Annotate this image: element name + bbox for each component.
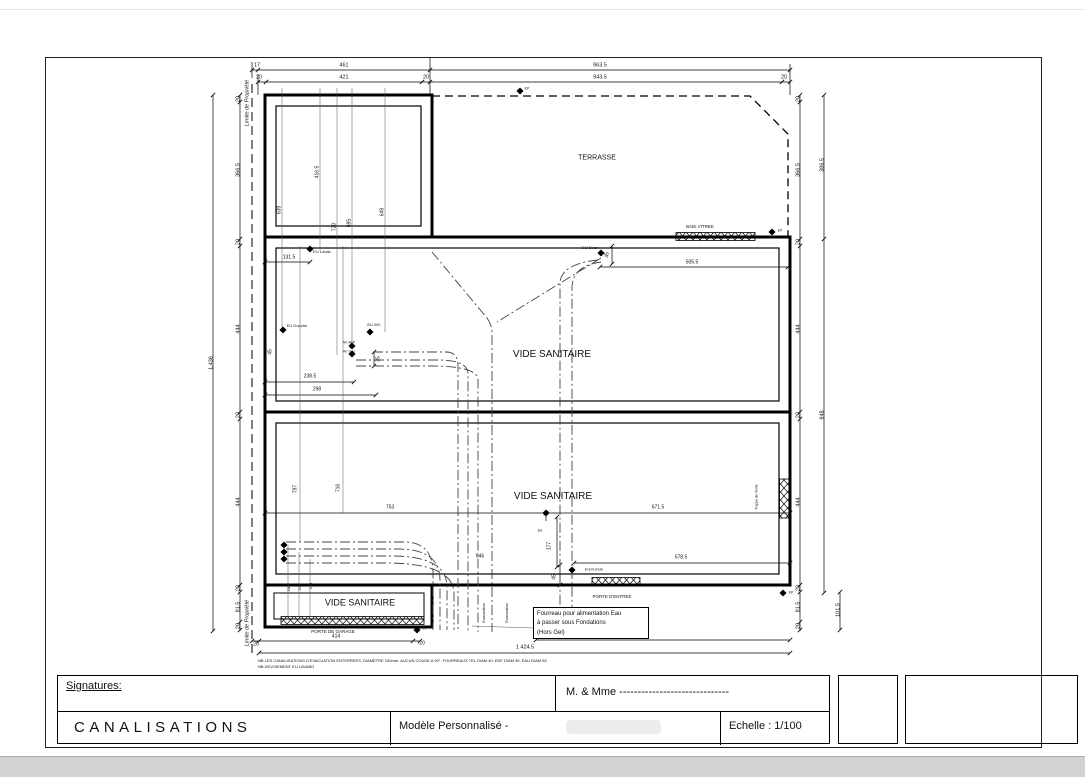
ep-marker-label: EP <box>789 591 794 595</box>
note-text: NB LES CANALISATIONS D'EVACUATION ENTERR… <box>258 659 547 663</box>
dim-label: 20 <box>796 239 802 245</box>
note-text: NB DEVOIEMENT EU LAVABO <box>258 665 314 669</box>
point-marker <box>568 566 575 573</box>
dim-label: 444 <box>796 497 802 506</box>
dim-label: 421 <box>339 75 348 81</box>
point-marker <box>366 328 373 335</box>
fourreau-note-line: Fourreau pour alimentation Eau <box>537 610 645 619</box>
dim-label: 298 <box>313 388 321 393</box>
dim-label: 81.5 <box>796 602 802 613</box>
dim-label: 414 <box>332 635 340 640</box>
fixture-label: Evacuation <box>482 603 486 623</box>
dim-label: 20 <box>256 75 262 81</box>
dim-label: 20 <box>236 96 242 102</box>
dim-label: 81.5 <box>236 602 242 613</box>
dim-label: 366.5 <box>796 163 802 177</box>
redacted-text <box>566 720 661 734</box>
dim-label: 948 <box>820 410 826 419</box>
point-marker <box>516 87 523 94</box>
plan-labels-layer: 17461963.52042120943.52020366.5204442044… <box>0 0 1085 777</box>
dim-label: 716 <box>337 484 342 492</box>
scale-cell: Echelle : 1/100 <box>721 712 829 745</box>
dim-label: 649 <box>381 208 386 216</box>
scale-label: Echelle : 1/100 <box>729 720 802 732</box>
drawing-title-cell: CANALISATIONS <box>58 712 391 745</box>
fourreau-note-line: (Hors Gel) <box>537 629 645 638</box>
dim-label: 366.5 <box>236 163 242 177</box>
room-label: TERRASSE <box>578 155 616 162</box>
room-label: VIDE SANITAIRE <box>513 350 591 360</box>
point-marker <box>779 589 786 596</box>
dim-label: 20 <box>236 623 242 629</box>
dim-label: 20 <box>796 585 802 591</box>
point-marker <box>279 326 286 333</box>
dim-label: 177 <box>548 542 553 550</box>
title-block-row2: CANALISATIONS Modèle Personnalisé - Eche… <box>58 712 829 745</box>
dim-label: 203 <box>298 584 302 591</box>
dim-label: 45 <box>606 252 611 258</box>
ep-marker-label: EP <box>525 87 530 91</box>
dim-label: 20 <box>796 623 802 629</box>
dim-label: 218 <box>309 583 313 590</box>
dim-label: 578.5 <box>675 556 688 561</box>
dim-label: 963.5 <box>593 63 607 69</box>
dim-label: 20 <box>236 239 242 245</box>
fourreau-note-box: Fourreau pour alimentation Eau à passer … <box>533 607 649 639</box>
drawing-title: CANALISATIONS <box>74 719 251 736</box>
dim-label: 20 <box>253 643 259 648</box>
point-marker <box>280 555 287 562</box>
dim-label: 17 <box>254 63 260 69</box>
signatures-cell: Signatures: <box>58 676 556 711</box>
signatures-label: Signatures: <box>66 680 122 692</box>
dim-label: 639 <box>278 206 283 214</box>
fourreau-note-line: à passer sous Fondations <box>537 619 645 628</box>
dim-label: 386.5 <box>820 158 826 172</box>
room-label: VIDE SANITAIRE <box>325 599 395 608</box>
canalisations-drawing-viewer: 17461963.52042120943.52020366.5204442044… <box>0 0 1085 777</box>
dim-label: 444 <box>796 324 802 333</box>
fixture-label: Event chute <box>585 568 603 572</box>
fixture-label: Evacuation <box>505 603 509 623</box>
dim-label: 505.5 <box>686 261 699 266</box>
viewer-bottom-bar <box>0 756 1085 777</box>
dim-label: 185 <box>287 585 291 592</box>
dim-label: 444 <box>236 324 242 333</box>
fixture-label: EU Evier <box>582 246 598 250</box>
property-line-label: Limite de Propriété <box>245 600 251 646</box>
title-block-side-box-small <box>838 675 898 744</box>
dim-label: 1,436 <box>209 356 215 370</box>
fixture-label: EU Douche <box>287 324 307 328</box>
client-cell: M. & Mme ------------------------------ <box>556 676 829 711</box>
point-marker <box>768 228 775 235</box>
point-marker <box>542 509 549 516</box>
dim-label: 720 <box>333 223 338 231</box>
dim-label: 646 <box>476 555 484 560</box>
dim-label: 101.5 <box>836 603 842 617</box>
dim-label: 20 <box>236 412 242 418</box>
ep-marker-label: EP <box>778 229 783 233</box>
dim-label: 20 <box>236 585 242 591</box>
point-marker <box>413 626 420 633</box>
fixture-label: EU Lavab <box>313 250 331 254</box>
dim-label: 20 <box>796 412 802 418</box>
title-block-row1: Signatures: M. & Mme -------------------… <box>58 676 829 712</box>
fixture-label: Trappe de Visite <box>755 484 759 509</box>
title-block: Signatures: M. & Mme -------------------… <box>57 675 830 744</box>
dim-label: 131.5 <box>283 256 296 261</box>
dim-label: 45 <box>553 574 558 580</box>
title-block-side-box-large <box>905 675 1078 744</box>
dim-label: 20 <box>419 642 425 647</box>
point-marker <box>597 249 604 256</box>
dim-label: 943.5 <box>593 75 607 81</box>
dim-label: 35 <box>377 356 382 362</box>
property-line-label: Limite de Propriété <box>245 80 251 126</box>
dim-label: 444 <box>236 497 242 506</box>
dim-label: 416.5 <box>316 166 321 179</box>
dim-label: 461 <box>339 63 348 69</box>
model-label: Modèle Personnalisé - <box>399 720 508 732</box>
dim-label: 695 <box>348 219 353 227</box>
client-label: M. & Mme ------------------------------ <box>566 686 729 698</box>
model-cell: Modèle Personnalisé - <box>391 712 721 745</box>
dim-label: 45 <box>269 349 274 355</box>
room-label: VIDE SANITAIRE <box>514 492 592 502</box>
fixture-label: EU WC <box>367 323 380 327</box>
ep-marker-label: EP <box>423 627 428 631</box>
fixture-label: EU <box>538 529 543 533</box>
dim-label: 1 424.5 <box>516 645 534 651</box>
fixture-label: PORTE D'ENTREE <box>592 595 631 600</box>
dim-label: 20 <box>423 75 429 81</box>
dim-label: 20 <box>796 96 802 102</box>
dim-label: 797 <box>294 485 299 493</box>
dim-label: 753 <box>386 506 394 511</box>
fixture-label: BAIE VITREE <box>686 225 714 230</box>
dim-label: 238.5 <box>304 375 317 380</box>
dim-label: 671.5 <box>652 506 665 511</box>
dim-label: 20 <box>781 75 787 81</box>
